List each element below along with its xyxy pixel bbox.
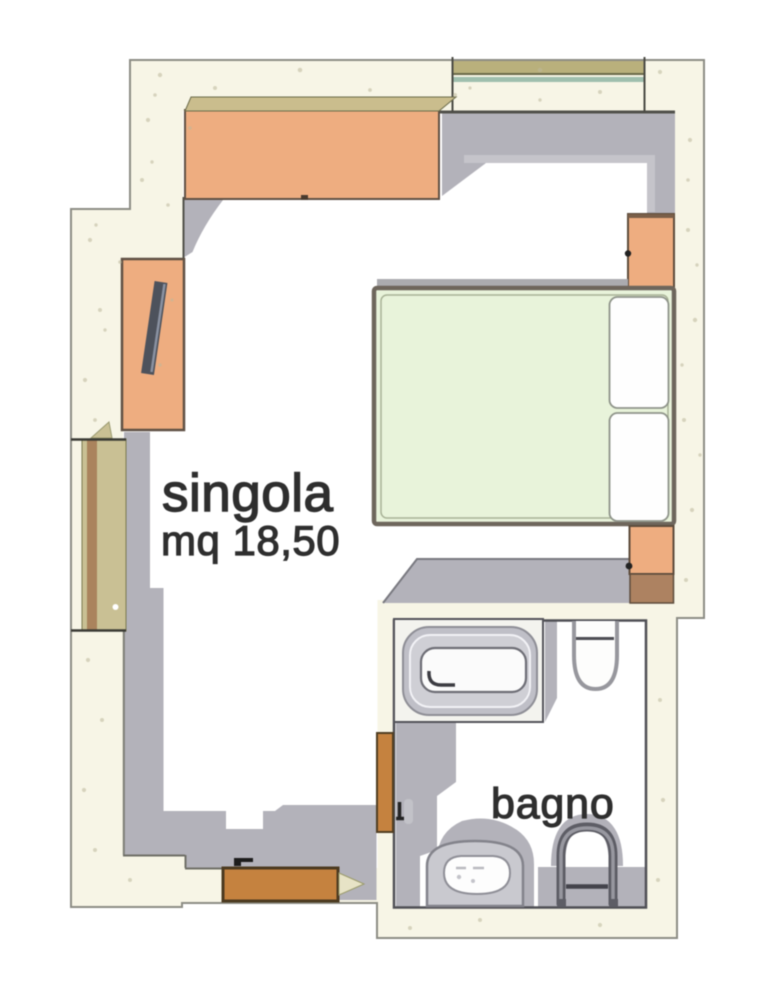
svg-text:singola: singola — [162, 464, 333, 523]
svg-text:mq 18,50: mq 18,50 — [161, 517, 340, 564]
svg-text:bagno: bagno — [491, 780, 615, 828]
